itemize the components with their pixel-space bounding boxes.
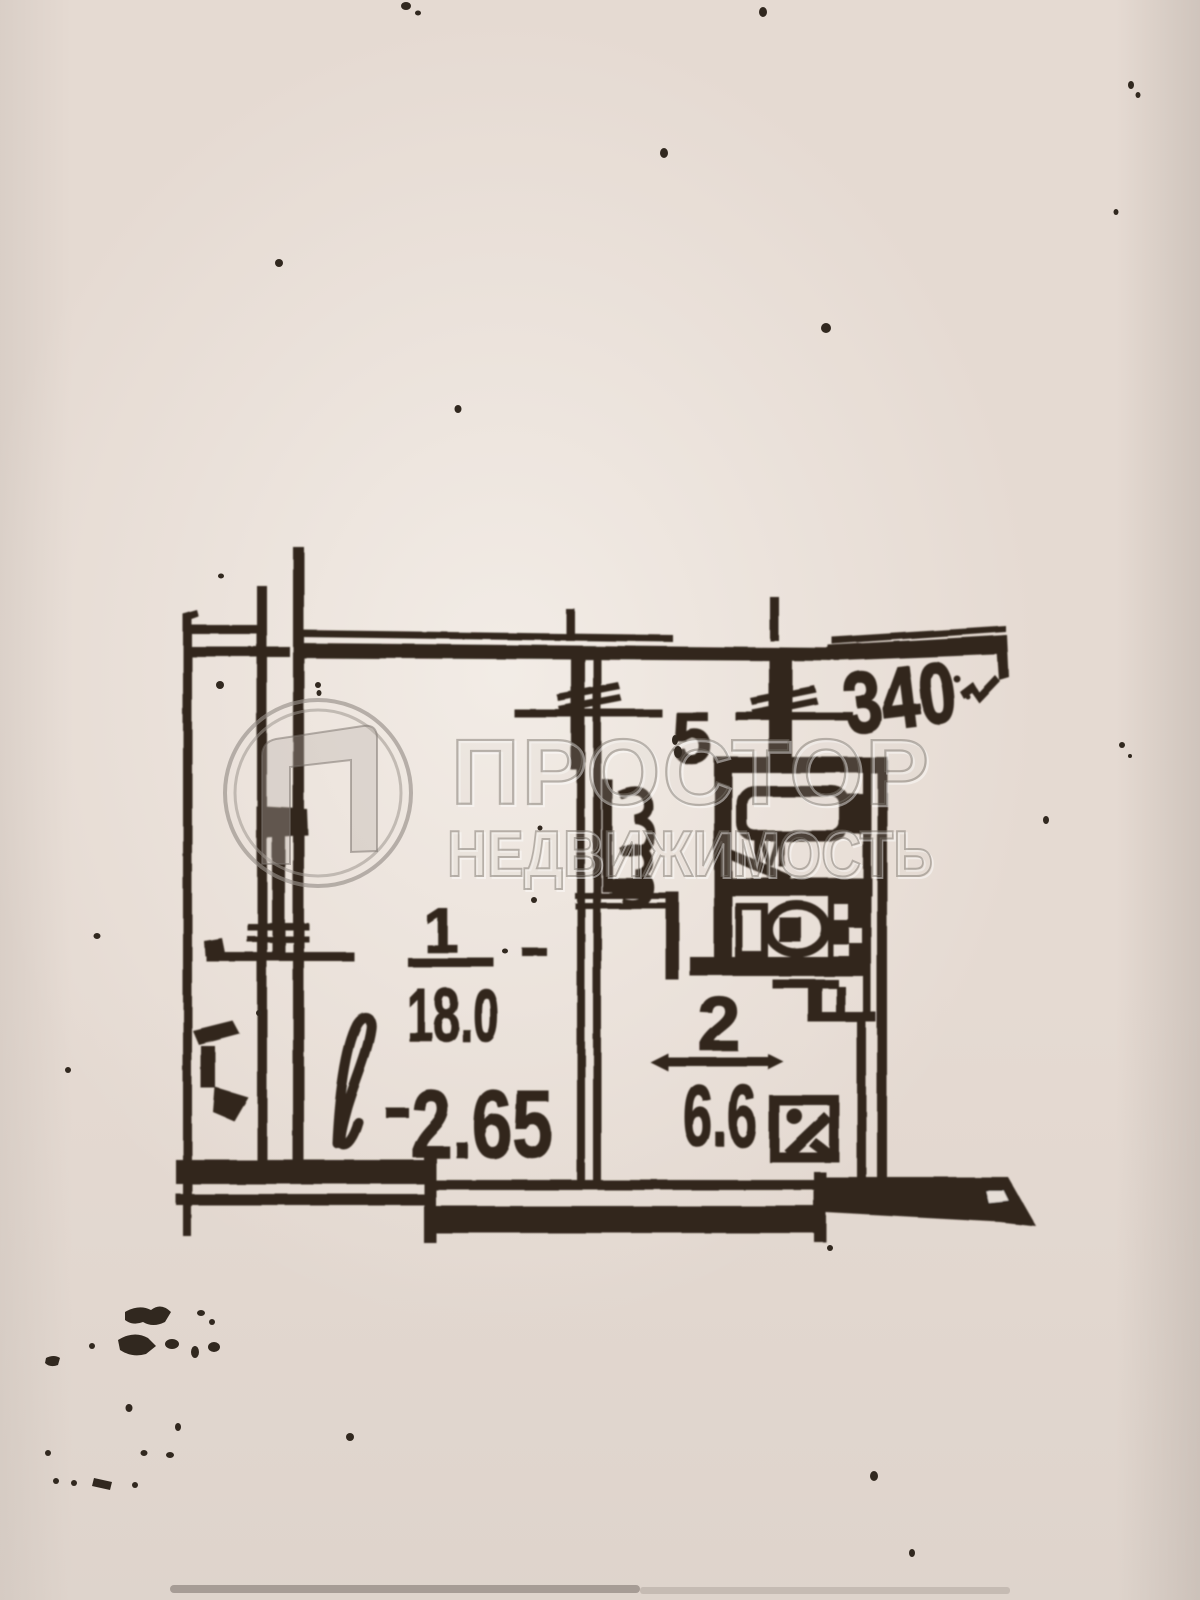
svg-text:6.6: 6.6 [683, 1066, 757, 1165]
svg-text:1: 1 [424, 897, 458, 966]
svg-text:НЕДВИЖИМОСТЬ: НЕДВИЖИМОСТЬ [447, 817, 933, 890]
svg-text:ПРОСТОР: ПРОСТОР [451, 720, 931, 824]
svg-text:2.65: 2.65 [411, 1071, 553, 1178]
svg-text:18.0: 18.0 [407, 974, 499, 1057]
svg-text:2: 2 [698, 982, 740, 1067]
